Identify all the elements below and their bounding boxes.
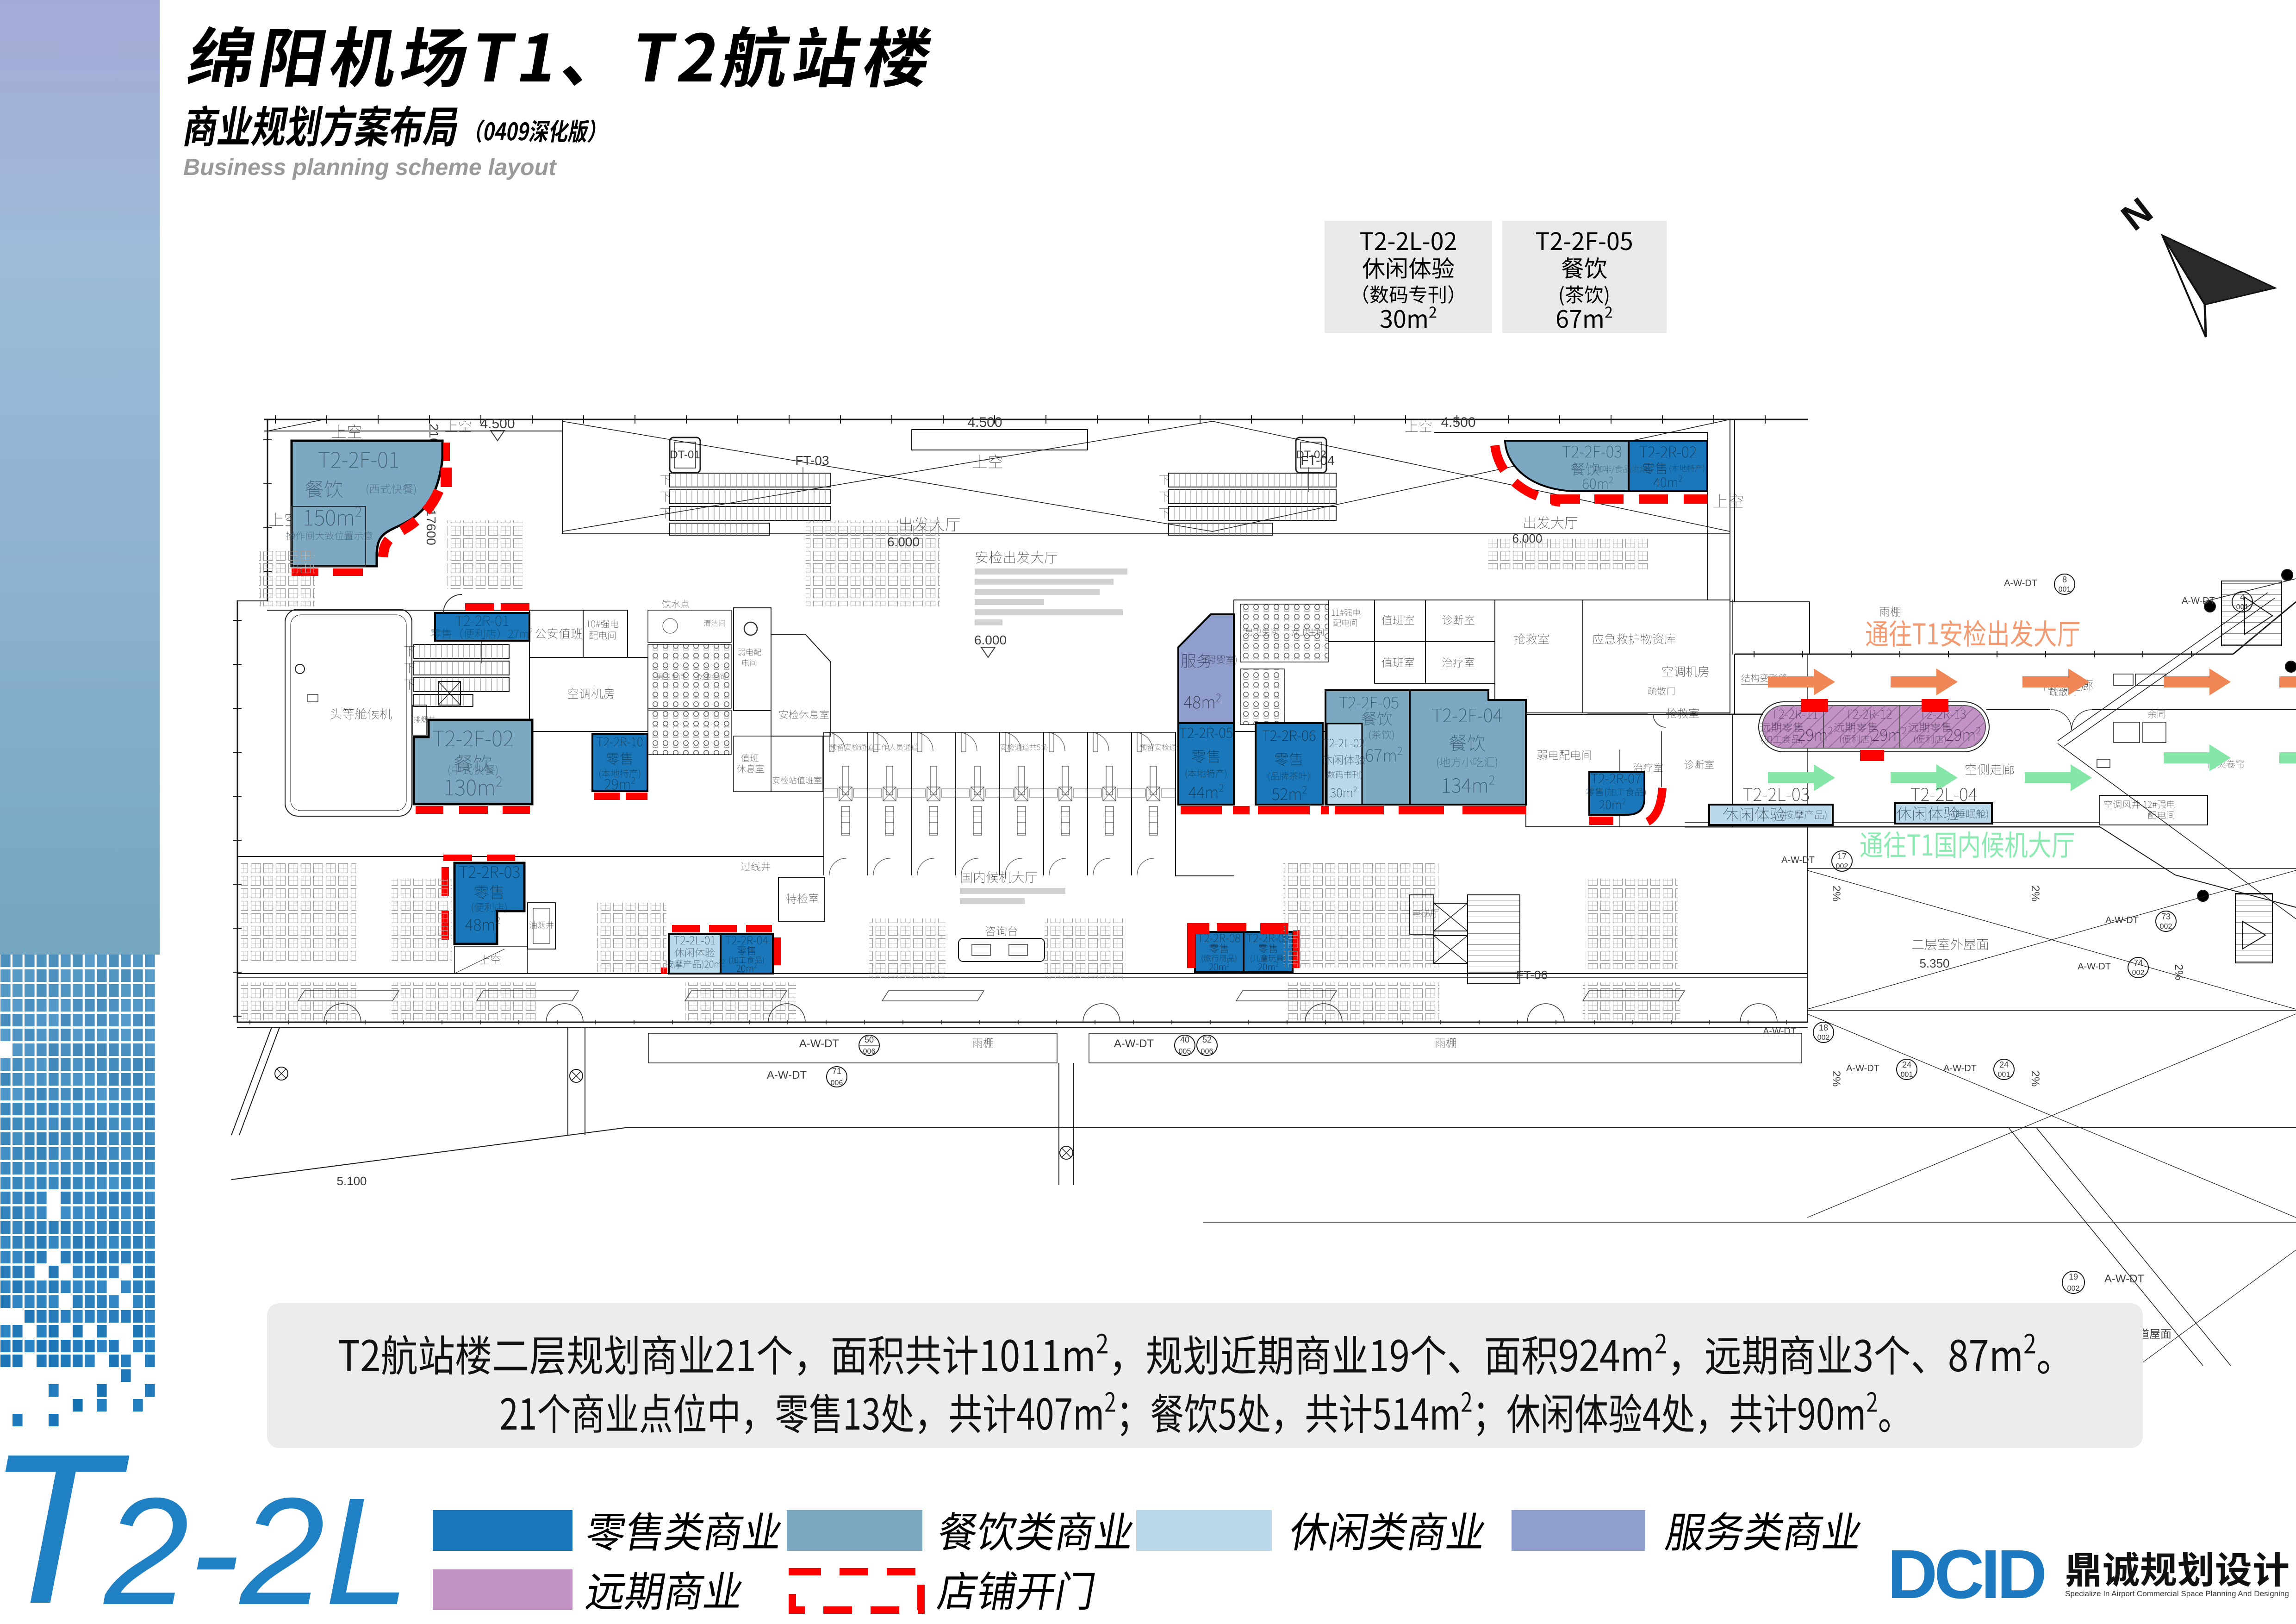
svg-text:4: 4 [2240, 593, 2245, 602]
svg-text:A-W-DT: A-W-DT [1781, 855, 1815, 865]
svg-text:2%: 2% [2029, 886, 2041, 902]
svg-text:A-W-DT: A-W-DT [1846, 1063, 1879, 1074]
svg-text:4.500: 4.500 [967, 415, 1002, 430]
svg-text:A-W-DT: A-W-DT [2104, 1273, 2145, 1285]
svg-text:FT-03: FT-03 [795, 453, 829, 468]
svg-text:FT-06: FT-06 [1516, 968, 1548, 982]
svg-text:001: 001 [1998, 1071, 2010, 1079]
svg-text:DT-02: DT-02 [1296, 449, 1326, 461]
svg-text:DT-01: DT-01 [670, 449, 700, 461]
svg-text:2%: 2% [1830, 1071, 1842, 1087]
svg-text:2%: 2% [2029, 1071, 2041, 1087]
svg-text:18: 18 [1819, 1023, 1828, 1032]
svg-text:A-W-DT: A-W-DT [2004, 578, 2037, 588]
svg-text:001: 001 [2236, 603, 2249, 611]
svg-text:A-W-DT: A-W-DT [1114, 1037, 1154, 1050]
svg-text:001: 001 [1901, 1071, 1913, 1079]
svg-text:006: 006 [831, 1079, 843, 1087]
svg-text:2%: 2% [1830, 886, 1842, 902]
svg-text:Specialize In Airport Commerci: Specialize In Airport Commercial Space P… [2065, 1589, 2289, 1598]
svg-text:50: 50 [865, 1035, 874, 1044]
svg-text:17600: 17600 [424, 509, 438, 545]
svg-text:4.500: 4.500 [1441, 415, 1475, 430]
svg-text:A-W-DT: A-W-DT [2182, 596, 2215, 606]
svg-text:A-W-DT: A-W-DT [1763, 1026, 1796, 1037]
svg-text:4.500: 4.500 [480, 416, 515, 431]
svg-text:002: 002 [1817, 1034, 1830, 1042]
svg-text:A-W-DT: A-W-DT [799, 1037, 840, 1050]
svg-text:A-W-DT: A-W-DT [1943, 1063, 1977, 1074]
svg-text:19: 19 [2069, 1272, 2078, 1281]
svg-text:001: 001 [2059, 586, 2071, 593]
svg-text:DCID: DCID [1887, 1535, 2047, 1613]
svg-text:5.350: 5.350 [1919, 956, 1949, 970]
svg-text:24: 24 [1999, 1060, 2009, 1069]
svg-text:002: 002 [2132, 969, 2145, 977]
svg-text:6.000: 6.000 [974, 633, 1007, 647]
svg-text:A-W-DT: A-W-DT [2078, 962, 2111, 972]
svg-text:N: N [2114, 189, 2160, 238]
svg-text:6.000: 6.000 [887, 535, 920, 549]
svg-text:73: 73 [2161, 912, 2171, 921]
svg-text:A-W-DT: A-W-DT [767, 1069, 807, 1081]
svg-text:2%: 2% [2172, 964, 2185, 981]
svg-text:74: 74 [2134, 958, 2143, 968]
svg-text:005: 005 [1179, 1048, 1191, 1056]
svg-text:006: 006 [863, 1048, 876, 1056]
svg-text:17: 17 [1837, 852, 1847, 861]
svg-text:71: 71 [832, 1067, 841, 1076]
svg-text:002: 002 [2160, 923, 2172, 931]
svg-text:6.000: 6.000 [1512, 531, 1542, 545]
svg-text:52: 52 [1202, 1035, 1212, 1044]
svg-text:Business planning scheme layou: Business planning scheme layout [183, 154, 557, 180]
svg-text:002: 002 [1836, 862, 1848, 870]
svg-text:5.100: 5.100 [336, 1174, 367, 1188]
svg-text:2-2L: 2-2L [102, 1466, 410, 1624]
svg-text:40: 40 [1180, 1035, 1189, 1044]
svg-text:006: 006 [1201, 1048, 1213, 1056]
svg-text:24: 24 [1902, 1060, 1911, 1069]
svg-text:002: 002 [2067, 1285, 2080, 1293]
svg-text:A-W-DT: A-W-DT [2105, 915, 2139, 925]
svg-text:8: 8 [2062, 575, 2067, 584]
